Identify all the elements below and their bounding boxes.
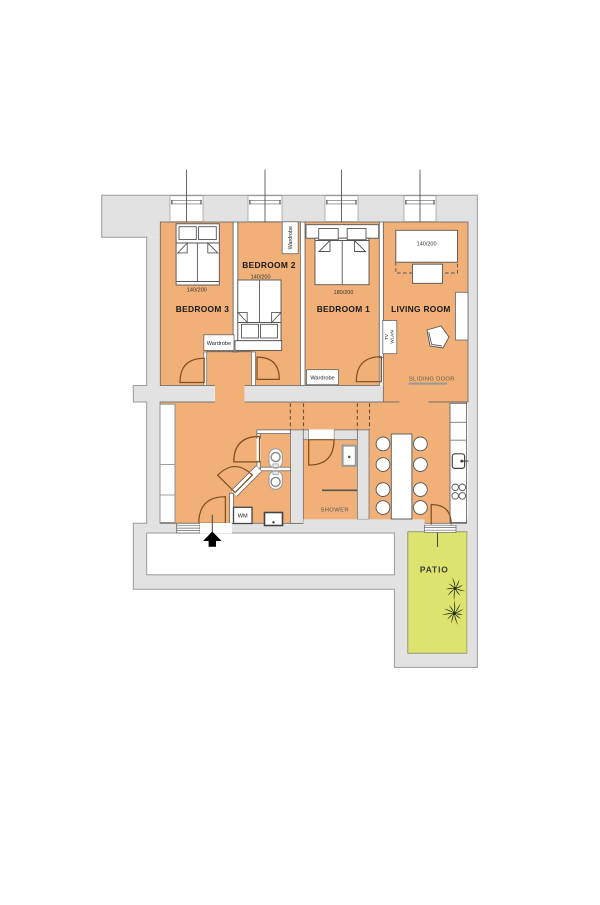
svg-text:140/200: 140/200 <box>417 241 437 247</box>
svg-text:BEDROOM 1: BEDROOM 1 <box>317 304 370 314</box>
svg-text:BEDROOM 2: BEDROOM 2 <box>242 260 295 270</box>
svg-text:Wardrobe: Wardrobe <box>288 226 294 249</box>
svg-text:180/200: 180/200 <box>334 290 354 296</box>
svg-text:PATIO: PATIO <box>420 564 449 574</box>
svg-text:SLIDING DOOR: SLIDING DOOR <box>409 376 455 382</box>
svg-text:SHOWER: SHOWER <box>320 507 349 513</box>
svg-text:WM: WM <box>238 514 248 520</box>
svg-text:140/200: 140/200 <box>251 274 271 280</box>
svg-text:LIVING ROOM: LIVING ROOM <box>391 304 451 314</box>
svg-text:140/200: 140/200 <box>187 287 207 293</box>
svg-text:Wardrobe: Wardrobe <box>207 341 231 347</box>
svg-text:BEDROOM 3: BEDROOM 3 <box>176 304 229 314</box>
svg-text:Wardrobe: Wardrobe <box>310 376 334 382</box>
svg-text:TV: TV <box>384 333 389 340</box>
svg-text:WLAN: WLAN <box>390 330 395 343</box>
